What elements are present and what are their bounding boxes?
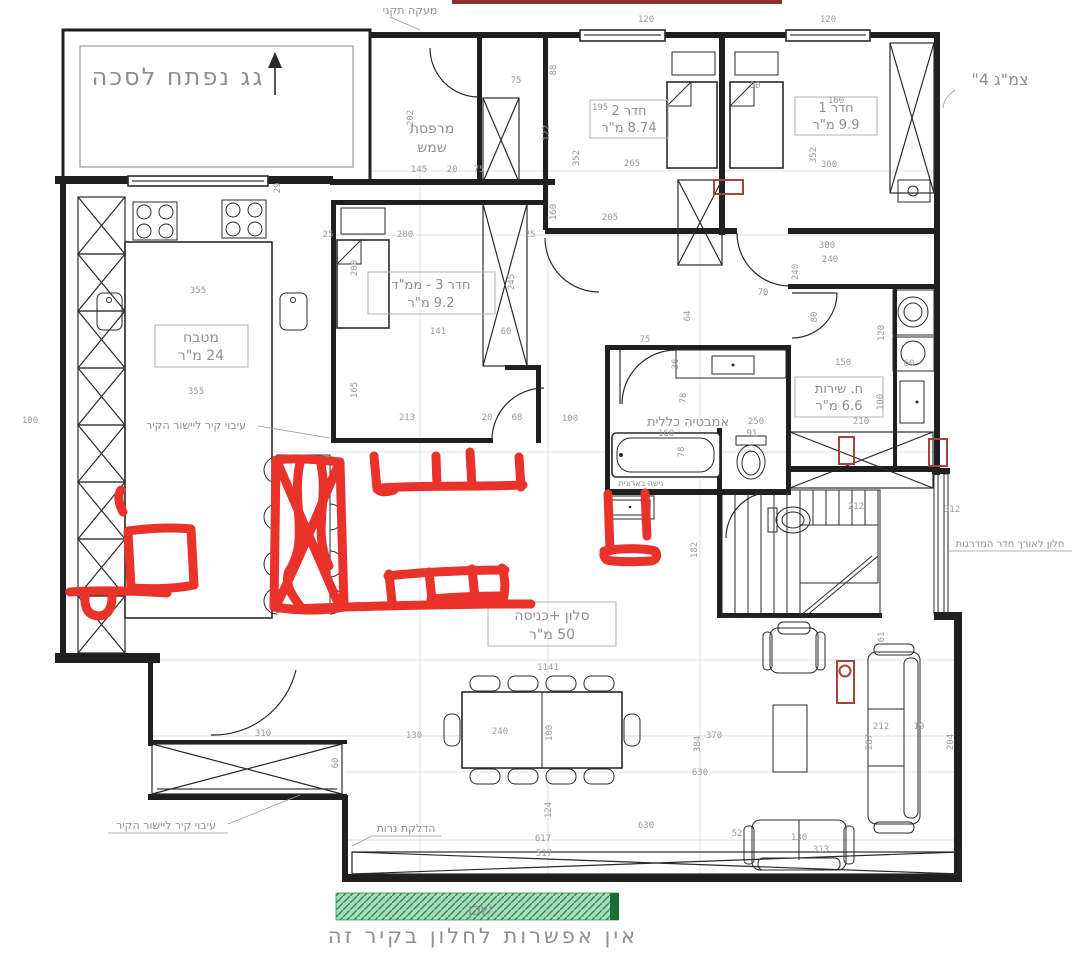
dimension-label: 20 xyxy=(447,165,458,175)
dimension-label: 91 xyxy=(747,429,758,439)
dimension-label: 100 xyxy=(545,725,555,741)
dimension-label: 70 xyxy=(758,288,769,298)
balcony-label-1: מרפסת xyxy=(410,121,454,137)
marker-botsofa-seat xyxy=(431,596,500,599)
dimension-label: 75 xyxy=(474,165,485,175)
bath-toilet xyxy=(736,436,766,479)
dimension-label: 384 xyxy=(693,736,703,752)
bottom-wall-hatch xyxy=(352,852,960,874)
room2-name: חדר 2 xyxy=(611,104,646,119)
stair-wc-door-arc xyxy=(726,492,772,538)
pantry-column xyxy=(78,197,125,653)
room1-bed xyxy=(730,52,783,168)
dimension-label: 78 xyxy=(679,393,689,404)
hall-closet xyxy=(483,98,519,182)
dimension-label: 287 xyxy=(865,734,875,750)
dimension-label: 202 xyxy=(406,110,416,126)
entry-door-arc xyxy=(211,670,296,735)
bath-name: אמבטיה כללית xyxy=(647,415,729,430)
roof-note: גג נפתח לסכה xyxy=(92,63,265,91)
marker-tick-left xyxy=(119,490,123,512)
room1-area: 9.9 מ"ר xyxy=(813,118,860,133)
dimension-label: 352 xyxy=(809,147,819,163)
dimension-label: 204 xyxy=(946,734,956,750)
sofa-right xyxy=(868,644,920,833)
dimension-label: 36 xyxy=(671,359,681,370)
marker-topsofa-base xyxy=(380,485,523,488)
salon-name: סלון +כניסה xyxy=(514,608,589,624)
dimension-label: 60 xyxy=(501,327,512,337)
no-window-note: אין אפשרות לחלון בקיר זה xyxy=(328,924,638,948)
dimension-label: 200 xyxy=(350,260,360,276)
neighbor-label: שכן xyxy=(468,900,492,919)
dimension-label: 160 xyxy=(658,429,674,439)
coffee-table xyxy=(773,705,807,772)
railing-note: מעקה תקני xyxy=(383,4,438,17)
dimension-label: 630 xyxy=(692,768,708,778)
balcony-door-arc xyxy=(430,48,478,97)
roof-terrace-outline xyxy=(63,30,370,182)
dimension-label: 213 xyxy=(399,413,415,423)
marker-topsofa-t1 xyxy=(436,456,437,486)
dimension-label: 25 xyxy=(525,230,536,240)
dimension-label: 29 xyxy=(273,183,283,194)
dimension-label: 78 xyxy=(677,447,687,458)
armchair xyxy=(763,622,825,673)
dimension-label: 20 xyxy=(482,413,493,423)
roof-arrow-icon xyxy=(268,52,282,95)
service-name: ח. שירות xyxy=(815,382,863,397)
dimension-label: 60 xyxy=(331,758,341,769)
dimension-label: 80 xyxy=(810,312,820,323)
dimension-label: 240 xyxy=(822,255,838,265)
salon-area: 50 מ"ר xyxy=(529,627,575,643)
wall-note-entry: עיבוי קיר ליישור הקיר xyxy=(116,819,216,832)
dimension-label: 352 xyxy=(572,150,582,166)
dimension-label: 240 xyxy=(791,264,801,280)
stairwell-window xyxy=(932,468,950,614)
dimension-label: 250 xyxy=(748,417,764,427)
washer-dryer xyxy=(893,290,934,423)
dimension-label: 120 xyxy=(877,325,887,341)
dimension-label: 517 xyxy=(536,849,552,859)
dimension-label: 122 xyxy=(542,125,552,141)
dimension-label: 120 xyxy=(638,15,654,25)
dimension-label: 68 xyxy=(512,413,523,423)
dimension-label: 130 xyxy=(406,731,422,741)
marker-botsofa-v1 xyxy=(389,574,392,602)
marker-topsofa-t3 xyxy=(519,457,521,487)
niche-note: נישה בארונית xyxy=(618,479,663,488)
marker-bracket-v1 xyxy=(608,494,610,551)
room3-bed xyxy=(337,208,389,328)
dimension-label: 25 xyxy=(323,230,334,240)
dimension-label: 160 xyxy=(549,204,559,220)
dimension-label: 100 xyxy=(22,416,38,426)
dimension-label: 120 xyxy=(820,15,836,25)
room2-door-arc xyxy=(545,238,599,292)
dimension-label: 165 xyxy=(350,382,360,398)
dimension-label: 630 xyxy=(638,821,654,831)
dimension-label: 145 xyxy=(411,165,427,175)
dimension-label: 100 xyxy=(562,414,578,424)
room1-door-arc xyxy=(737,233,790,286)
dimension-label: 310 xyxy=(255,729,271,739)
dimension-label: 300 xyxy=(821,160,837,170)
dimension-label: 210 xyxy=(853,417,869,427)
red-mark-hall xyxy=(839,437,854,464)
room2-bed xyxy=(667,52,717,168)
entry-closet xyxy=(152,744,342,794)
dimension-label: 212 xyxy=(848,502,864,512)
dimension-label: 1141 xyxy=(537,663,559,673)
sofa-bottom xyxy=(744,820,854,870)
marker-bracket-v2 xyxy=(645,493,647,536)
dimension-label: 88 xyxy=(549,65,559,76)
room3-area: 9.2 מ"ר xyxy=(408,296,455,311)
marker-bracket-base xyxy=(604,549,657,562)
marker-hook-left xyxy=(85,595,112,616)
floor-plan-drawing: שכן גג נפתח לסכה מעקה תקני מרפסת שמש חדר… xyxy=(0,0,1079,962)
dimension-label: 150 xyxy=(835,358,851,368)
marker-baseline xyxy=(296,604,531,609)
marker-topsofa-t2 xyxy=(470,452,472,486)
dimension-label: 60 xyxy=(904,359,915,369)
dimension-label: 90 xyxy=(750,81,761,91)
room3-closet xyxy=(483,204,527,366)
kitchen-name: מטבח xyxy=(183,330,219,346)
room3-name: חדר 3 - ממ"ד xyxy=(391,278,470,293)
dimension-label: 195 xyxy=(592,103,608,113)
dimension-label: 130 xyxy=(791,833,807,843)
room1-closet xyxy=(890,43,934,202)
dimension-label: 160 xyxy=(828,96,844,106)
pipe-note: צמ"ג 4" xyxy=(972,70,1029,89)
dimension-label: 313 xyxy=(813,845,829,855)
balcony-label-2: שמש xyxy=(417,140,446,156)
dimension-label: 370 xyxy=(706,731,722,741)
dimension-label: 280 xyxy=(397,230,413,240)
dimension-label: 61 xyxy=(877,632,887,643)
dimension-label: 182 xyxy=(690,542,700,558)
dimension-label: 617 xyxy=(535,834,551,844)
room2-area: 8.74 מ"ר xyxy=(601,121,656,136)
dining-table xyxy=(444,676,640,784)
kitchen-area: 24 מ"ר xyxy=(178,348,224,364)
marker-botsofa-top xyxy=(388,570,505,576)
dimension-label: 212 xyxy=(873,722,889,732)
dimension-label: 265 xyxy=(624,159,640,169)
floor-plan-page: שכן גג נפתח לסכה מעקה תקני מרפסת שמש חדר… xyxy=(0,0,1079,962)
dimension-label: 355 xyxy=(190,286,206,296)
dimension-label: 240 xyxy=(492,727,508,737)
cooktop-right xyxy=(222,200,266,238)
cooktop-left xyxy=(133,202,177,240)
bath-vanity xyxy=(676,350,786,378)
service-area: 6.6 מ"ר xyxy=(816,399,863,414)
dimension-label: 64 xyxy=(683,311,693,322)
red-mark-salon-circle xyxy=(840,666,851,677)
stair-window-note: חלון לאורך חדר המדרגות xyxy=(956,539,1065,550)
dimension-label: 300 xyxy=(819,241,835,251)
kitchen-sink-right xyxy=(280,293,307,330)
dimension-label: 312 xyxy=(944,505,960,515)
bathtub xyxy=(612,433,720,477)
red-mark-salon xyxy=(837,661,854,703)
dimension-label: 19 xyxy=(914,722,925,732)
dimension-label: 245 xyxy=(507,274,517,290)
dimension-label: 75 xyxy=(511,76,522,86)
dimension-label: 141 xyxy=(430,327,446,337)
dimension-label: 52 xyxy=(732,829,743,839)
bath-door-arc xyxy=(622,350,676,404)
dimension-label: 75 xyxy=(640,335,651,345)
dimension-label: 100 xyxy=(876,394,886,410)
stair-landing-hatch xyxy=(790,432,933,488)
neighbor-strip: שכן xyxy=(336,893,619,920)
wall-note-kitchen: עיבוי קיר ליישור הקיר xyxy=(146,419,246,432)
dimension-label: 124 xyxy=(544,802,554,818)
dimension-label: 205 xyxy=(602,213,618,223)
candles-note: הדלקת נרות xyxy=(377,822,436,835)
dimension-label: 355 xyxy=(188,387,204,397)
